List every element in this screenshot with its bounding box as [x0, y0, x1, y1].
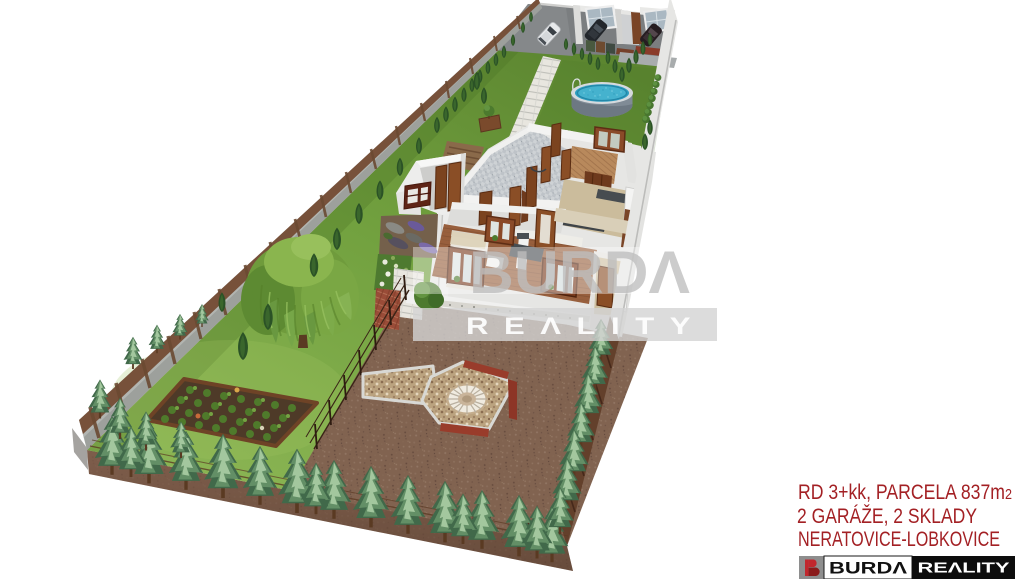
svg-text:BURDΛ: BURDΛ	[469, 239, 690, 306]
svg-text:RD 3+kk, PARCELA 837m2: RD 3+kk, PARCELA 837m2	[798, 481, 1012, 504]
svg-text:2 GARÁŽE, 2 SKLADY: 2 GARÁŽE, 2 SKLADY	[797, 505, 977, 528]
svg-text:BURDΛ: BURDΛ	[829, 559, 908, 578]
svg-text:REΛLITY: REΛLITY	[918, 560, 1010, 577]
svg-text:REΛLITY: REΛLITY	[466, 313, 706, 340]
svg-text:NERATOVICE-LOBKOVICE: NERATOVICE-LOBKOVICE	[798, 528, 1000, 551]
